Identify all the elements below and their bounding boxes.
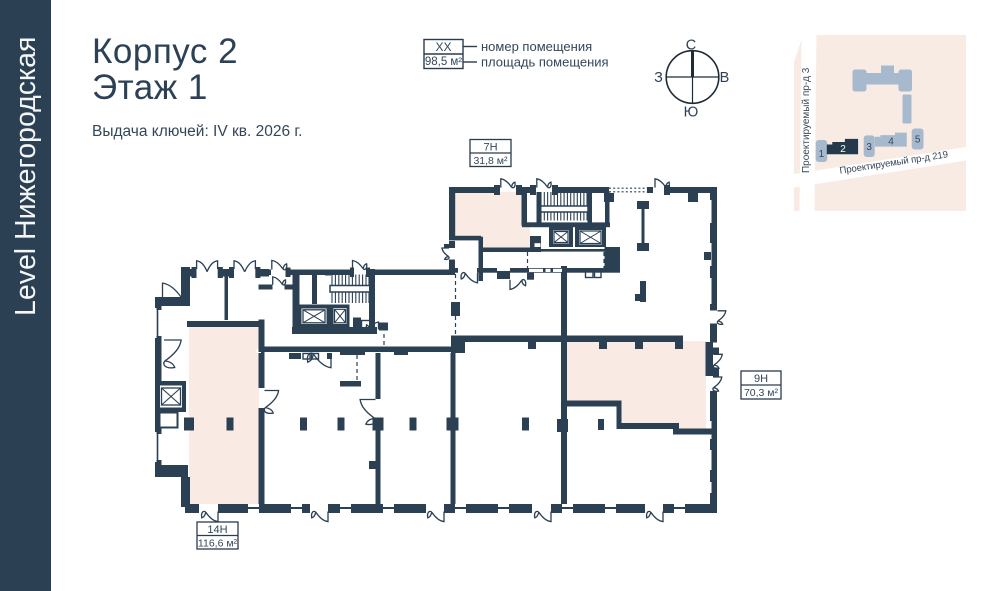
svg-text:В: В bbox=[720, 70, 730, 86]
svg-text:номер помещения: номер помещения bbox=[481, 39, 592, 54]
svg-text:9Н: 9Н bbox=[754, 373, 768, 385]
svg-text:7Н: 7Н bbox=[483, 142, 497, 154]
svg-text:4: 4 bbox=[888, 137, 894, 148]
svg-text:XX: XX bbox=[435, 40, 451, 54]
svg-text:Ю: Ю bbox=[684, 105, 699, 121]
svg-text:площадь помещения: площадь помещения bbox=[481, 55, 609, 70]
svg-text:5: 5 bbox=[915, 135, 921, 146]
svg-text:3: 3 bbox=[866, 142, 872, 153]
svg-text:14Н: 14Н bbox=[207, 524, 227, 536]
svg-text:С: С bbox=[686, 38, 696, 54]
svg-text:1: 1 bbox=[819, 149, 825, 160]
svg-text:70,3 м²: 70,3 м² bbox=[744, 387, 779, 399]
svg-text:З: З bbox=[654, 70, 663, 86]
svg-text:2: 2 bbox=[840, 144, 846, 155]
svg-text:98,5 м²: 98,5 м² bbox=[425, 56, 462, 68]
svg-text:Проектируемый пр-д 3: Проектируемый пр-д 3 bbox=[801, 67, 812, 173]
svg-text:31,8 м²: 31,8 м² bbox=[473, 155, 508, 167]
svg-text:116,6 м²: 116,6 м² bbox=[198, 538, 238, 550]
